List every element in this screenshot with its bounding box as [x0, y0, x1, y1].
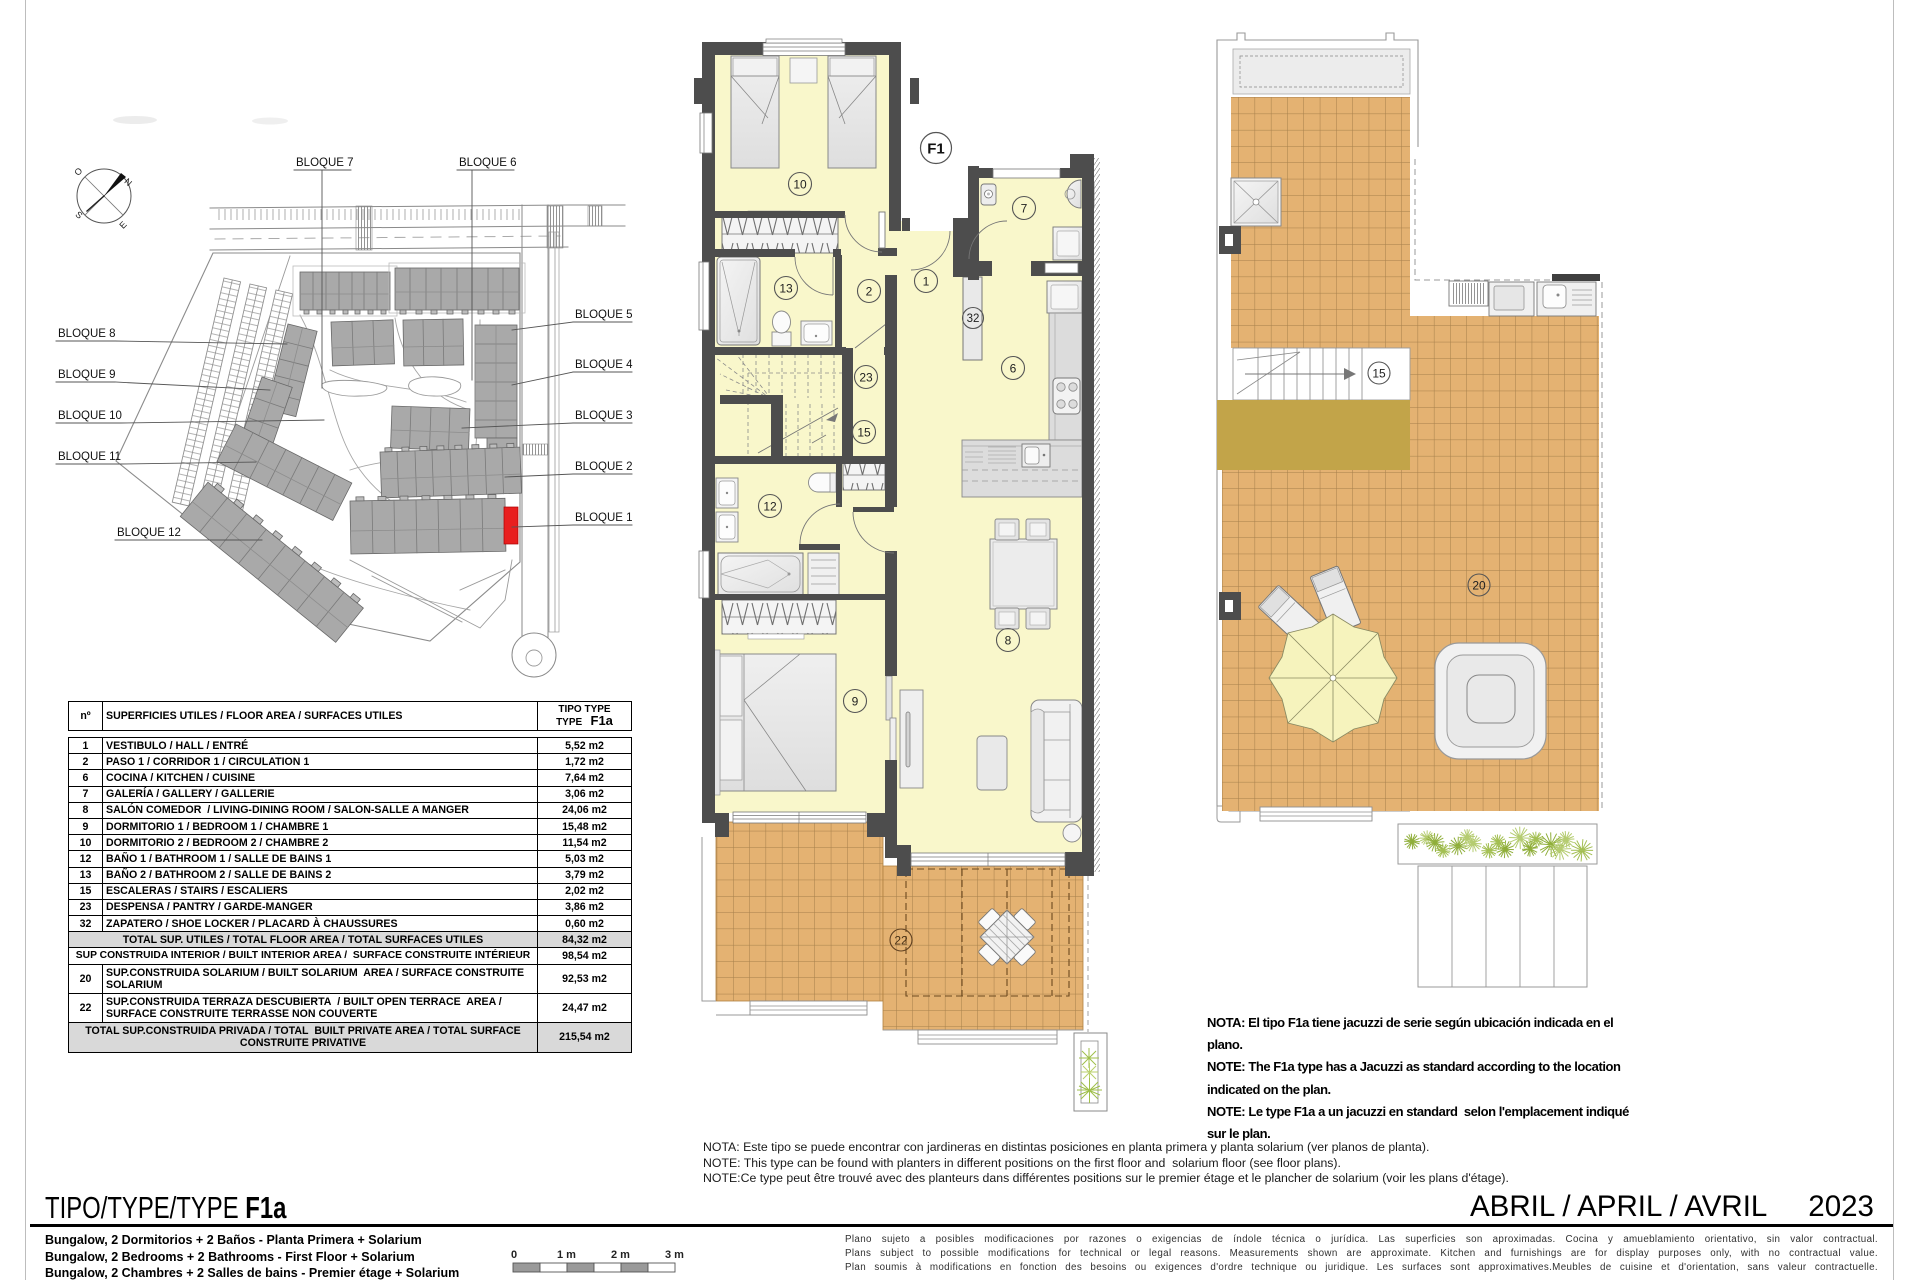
svg-text:8: 8: [1005, 634, 1012, 648]
svg-text:E: E: [117, 219, 128, 230]
svg-text:BLOQUE 3: BLOQUE 3: [575, 410, 633, 422]
svg-text:10: 10: [793, 178, 807, 192]
svg-text:32: 32: [967, 313, 980, 325]
svg-text:BLOQUE 8: BLOQUE 8: [58, 328, 116, 340]
svg-text:0: 0: [511, 1249, 517, 1261]
svg-text:6: 6: [1010, 362, 1017, 376]
svg-text:BLOQUE 1: BLOQUE 1: [575, 512, 633, 524]
svg-text:3 m: 3 m: [665, 1249, 684, 1261]
svg-text:1: 1: [923, 275, 930, 289]
svg-text:1 m: 1 m: [557, 1249, 576, 1261]
svg-text:23: 23: [859, 371, 873, 385]
svg-text:13: 13: [779, 282, 793, 296]
svg-text:BLOQUE 10: BLOQUE 10: [58, 410, 122, 422]
svg-text:BLOQUE 11: BLOQUE 11: [58, 451, 121, 463]
svg-text:2 m: 2 m: [611, 1249, 630, 1261]
svg-text:2: 2: [866, 285, 873, 299]
svg-text:F1: F1: [927, 141, 945, 158]
svg-text:BLOQUE 6: BLOQUE 6: [459, 157, 517, 169]
svg-text:12: 12: [763, 500, 777, 514]
svg-text:BLOQUE 5: BLOQUE 5: [575, 309, 633, 321]
svg-text:15: 15: [1372, 367, 1386, 381]
svg-text:BLOQUE 7: BLOQUE 7: [296, 157, 354, 169]
svg-text:BLOQUE 12: BLOQUE 12: [117, 527, 181, 539]
svg-text:O: O: [72, 166, 84, 178]
svg-text:S: S: [73, 209, 84, 221]
svg-text:BLOQUE 2: BLOQUE 2: [575, 461, 633, 473]
svg-text:9: 9: [852, 695, 859, 709]
svg-text:20: 20: [1472, 579, 1486, 593]
svg-text:22: 22: [894, 934, 908, 948]
svg-text:BLOQUE 9: BLOQUE 9: [58, 369, 116, 381]
svg-text:7: 7: [1021, 202, 1028, 216]
svg-text:BLOQUE 4: BLOQUE 4: [575, 359, 633, 371]
svg-text:15: 15: [857, 426, 871, 440]
